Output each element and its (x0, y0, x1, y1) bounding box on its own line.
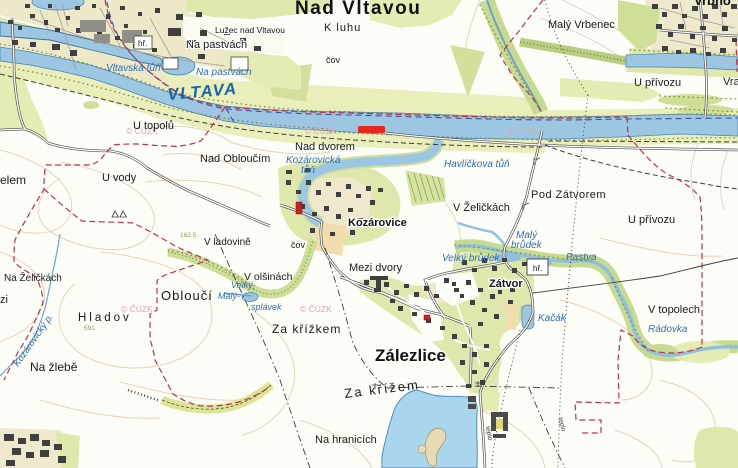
svg-text:591: 591 (84, 325, 95, 332)
svg-text:čov: čov (291, 240, 306, 250)
svg-text:Kozárovice: Kozárovice (348, 217, 407, 229)
svg-text:Vrbno: Vrbno (694, 0, 731, 8)
svg-text:Zálezlice: Zálezlice (375, 346, 446, 365)
svg-text:Vltavská tůň: Vltavská tůň (106, 62, 161, 74)
svg-text:Na Želičkách: Na Želičkách (4, 271, 62, 284)
svg-text:U přívozu: U přívozu (628, 214, 675, 226)
svg-text:hř.: hř. (138, 39, 147, 48)
svg-text:čov: čov (326, 55, 341, 65)
svg-text:Nad Obloučím: Nad Obloučím (200, 153, 270, 165)
svg-text:brůdek: brůdek (511, 239, 543, 251)
svg-text:© ČÚZK: © ČÚZK (305, 126, 337, 136)
svg-text:Mezi dvory: Mezi dvory (349, 262, 403, 274)
svg-text:Rádovka: Rádovka (648, 324, 688, 335)
svg-text:V Želičkách: V Želičkách (453, 201, 510, 214)
svg-text:Zátvor: Zátvor (489, 278, 523, 290)
svg-text:U přívozu: U přívozu (634, 77, 681, 89)
svg-text:Pod Zátvorem: Pod Zátvorem (531, 189, 606, 201)
svg-text:Velký brůdek: Velký brůdek (442, 252, 500, 264)
svg-text:Kačák: Kačák (538, 313, 567, 324)
svg-text:Malý Vrbenec: Malý Vrbenec (548, 19, 615, 31)
svg-text:© ČÚZK: © ČÚZK (508, 126, 540, 136)
svg-text:Malý-: Malý- (218, 291, 240, 301)
svg-text:Za křížkem: Za křížkem (272, 322, 341, 336)
svg-text:hř.: hř. (533, 264, 542, 273)
svg-text:Vra: Vra (723, 76, 738, 88)
svg-text:Nad Vltavou: Nad Vltavou (295, 0, 421, 19)
svg-text:Na žlebě: Na žlebě (30, 360, 78, 374)
svg-text:U vody: U vody (102, 172, 137, 184)
svg-text:tůň: tůň (301, 164, 315, 176)
svg-text:162.5: 162.5 (180, 232, 197, 239)
svg-text:zi: zi (0, 294, 8, 306)
svg-text:V ladovině: V ladovině (204, 237, 251, 248)
svg-text:Na pastvách: Na pastvách (196, 67, 252, 78)
svg-text:V topolech: V topolech (648, 304, 700, 316)
svg-text:Nad dvorem: Nad dvorem (295, 141, 355, 153)
svg-text:Velký-: Velký- (231, 280, 256, 290)
svg-text:Pastva: Pastva (566, 252, 597, 263)
svg-text:Na pastvách: Na pastvách (186, 39, 247, 51)
svg-text:Havlíčkova tůň: Havlíčkova tůň (444, 158, 510, 170)
svg-text:Lužec nad Vltavou: Lužec nad Vltavou (215, 25, 285, 35)
svg-text:elem: elem (0, 173, 26, 187)
svg-text:© ČÚZK: © ČÚZK (300, 304, 332, 314)
svg-text:Hladov: Hladov (78, 312, 132, 324)
svg-text:splávek: splávek (251, 302, 282, 312)
svg-text:K luhu: K luhu (324, 22, 361, 34)
svg-text:Obloučí: Obloučí (161, 288, 213, 303)
svg-text:U topolů: U topolů (133, 120, 174, 132)
svg-text:Na hranicích: Na hranicích (315, 434, 377, 446)
